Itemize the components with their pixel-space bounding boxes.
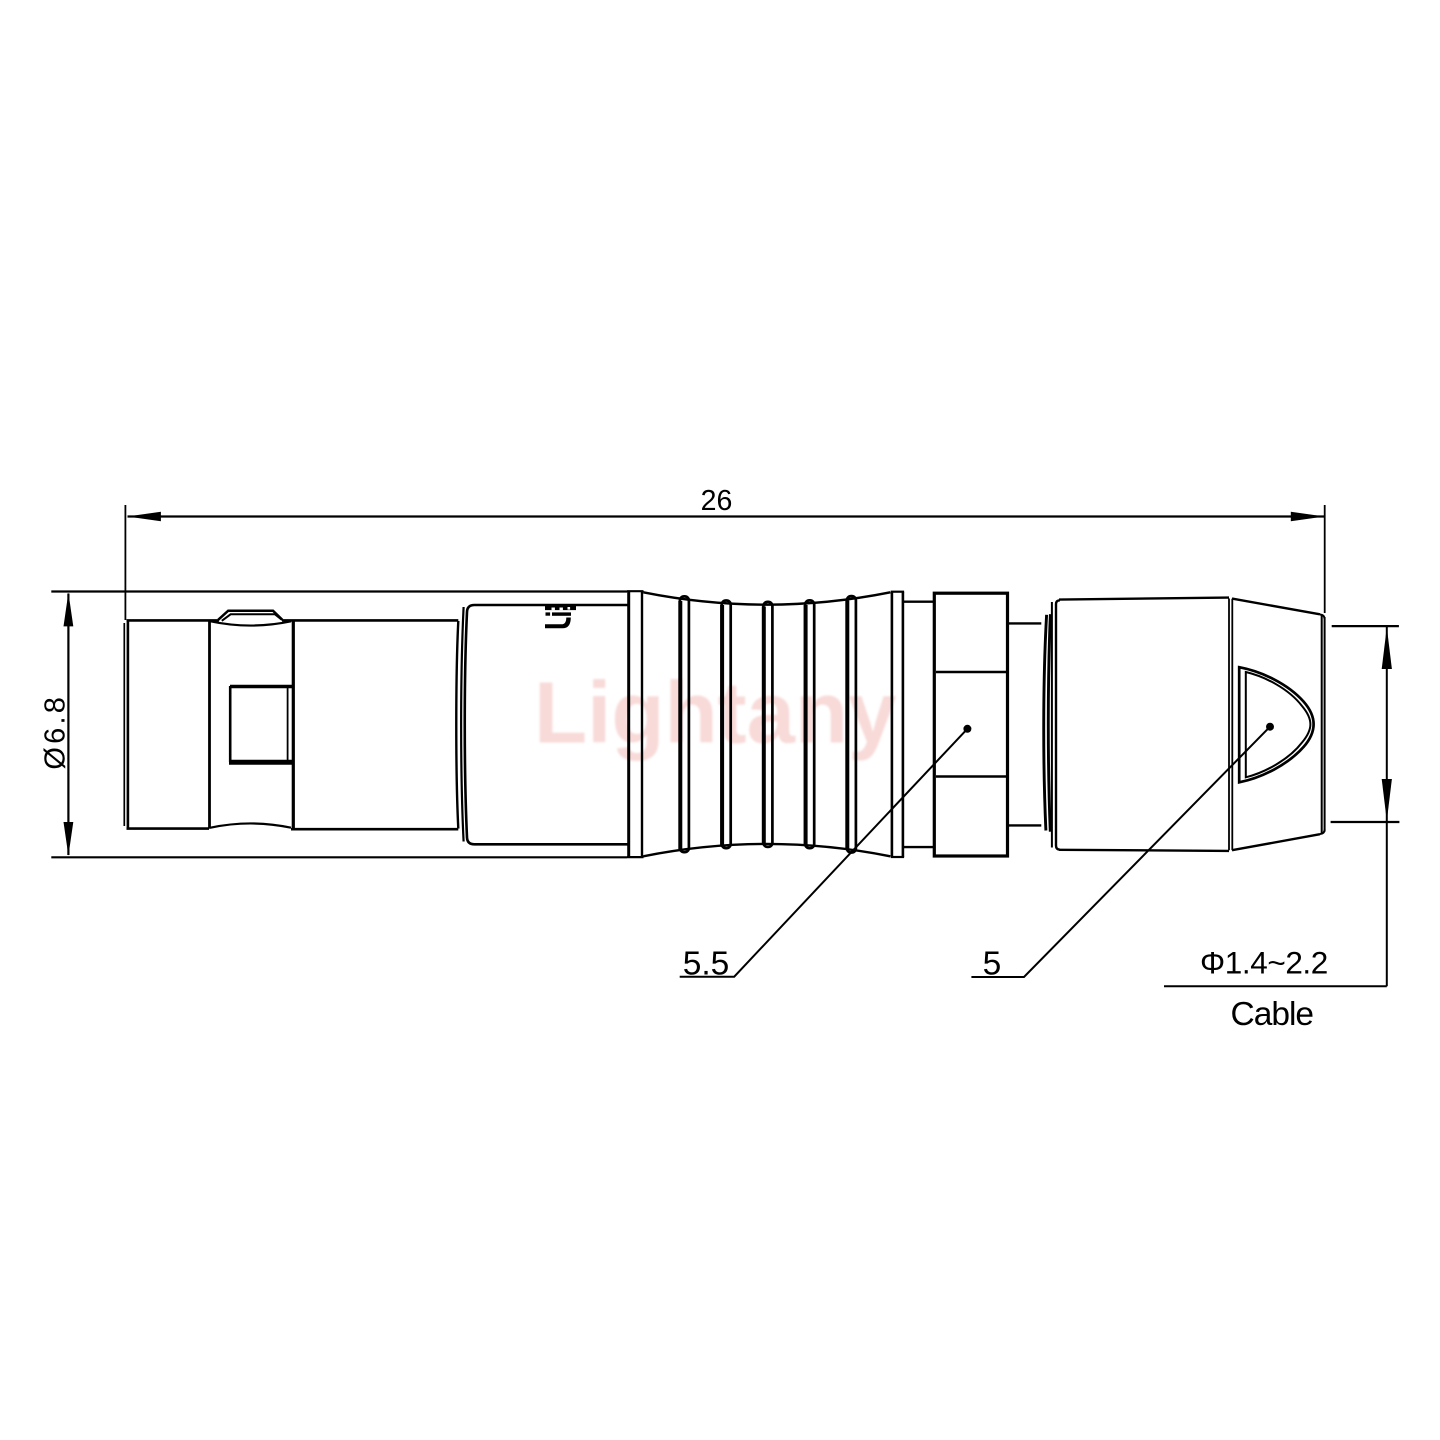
svg-text:Ø6.8: Ø6.8	[40, 694, 72, 770]
svg-text:Φ1.4~2.2: Φ1.4~2.2	[1200, 945, 1328, 981]
svg-text:Cable: Cable	[1231, 996, 1314, 1033]
svg-text:5.5: 5.5	[683, 946, 730, 983]
svg-text:5: 5	[983, 946, 1002, 983]
svg-text:26: 26	[701, 485, 733, 517]
svg-text:Lightany: Lightany	[534, 665, 897, 762]
